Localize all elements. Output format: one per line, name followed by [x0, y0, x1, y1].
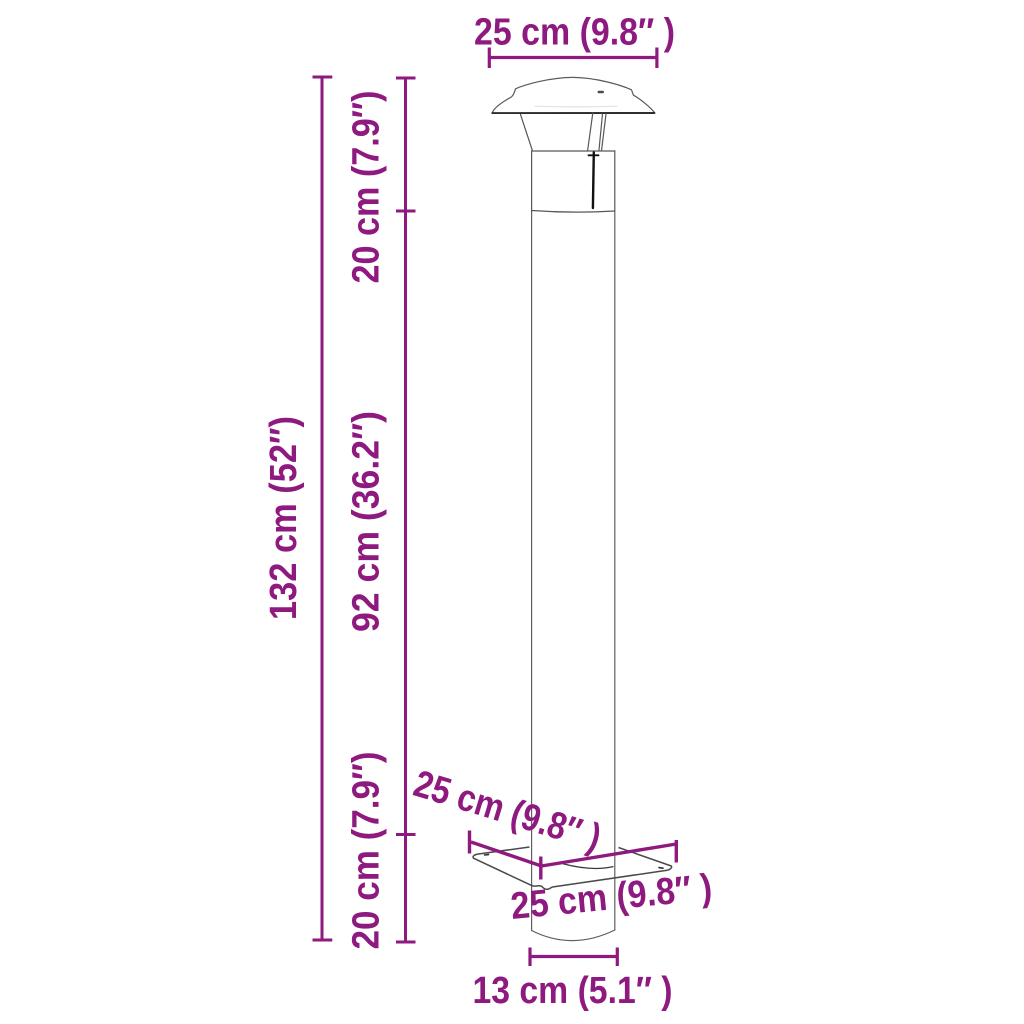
svg-text:20 cm (7.9″): 20 cm (7.9″) [346, 91, 388, 284]
svg-text:132 cm (52″): 132 cm (52″) [263, 416, 305, 620]
svg-text:20 cm (7.9″): 20 cm (7.9″) [346, 752, 388, 950]
svg-text:13 cm (5.1″ ): 13 cm (5.1″ ) [473, 970, 673, 1012]
svg-text:25 cm (9.8″ ): 25 cm (9.8″ ) [474, 12, 675, 54]
svg-text:92 cm (36.2″): 92 cm (36.2″) [346, 411, 388, 632]
